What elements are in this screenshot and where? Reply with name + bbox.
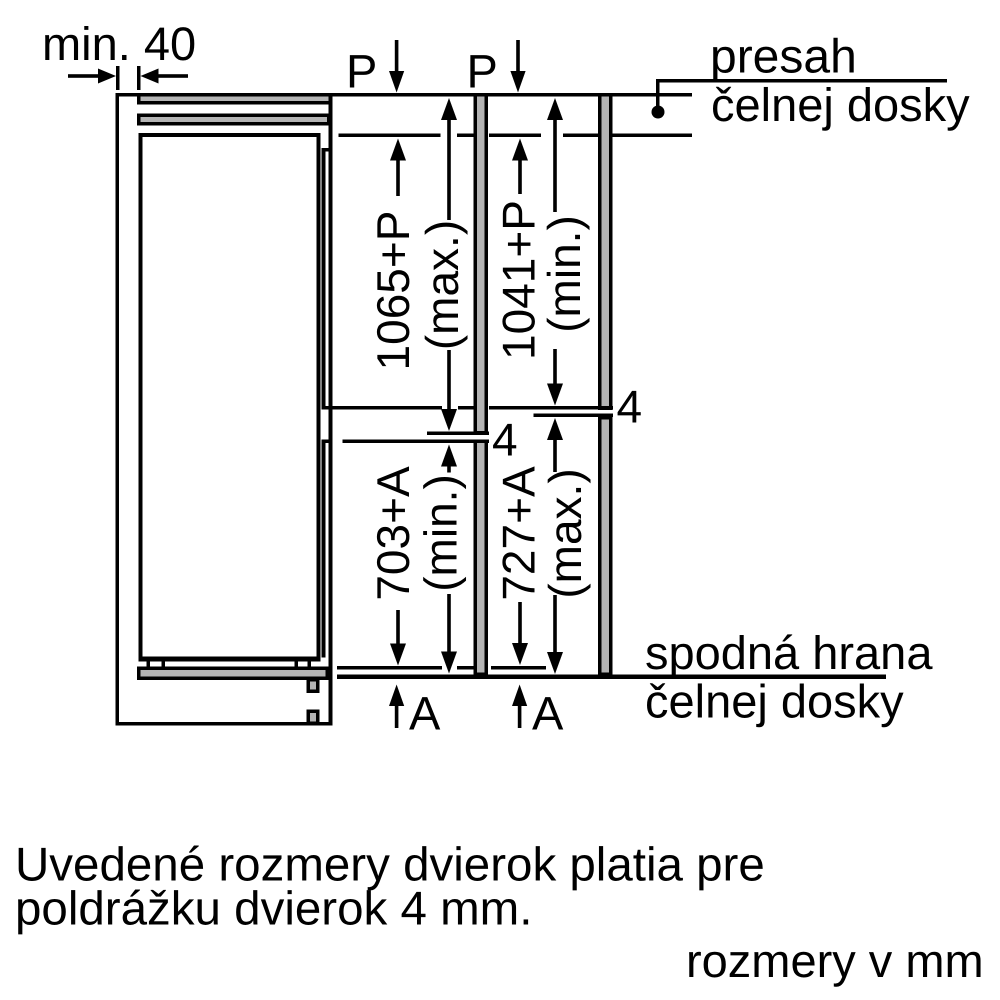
svg-text:1065+P: 1065+P [367,211,419,371]
svg-text:rozmery v mm: rozmery v mm [686,934,984,987]
svg-text:(max.): (max.) [539,468,591,598]
svg-text:P: P [467,45,498,98]
svg-text:(min.): (min.) [415,474,467,592]
svg-text:A: A [532,687,564,740]
svg-text:(max.): (max.) [416,220,468,350]
svg-text:min. 40: min. 40 [42,17,196,70]
svg-text:(min.): (min.) [538,215,590,333]
svg-text:1041+P: 1041+P [493,200,545,360]
svg-text:703+A: 703+A [367,466,419,601]
svg-text:P: P [346,45,377,98]
svg-text:4: 4 [617,381,643,433]
svg-text:spodná hrana: spodná hrana [645,626,933,679]
svg-text:poldrážku dvierok 4 mm.: poldrážku dvierok 4 mm. [15,883,532,936]
svg-text:A: A [409,687,441,740]
svg-text:727+A: 727+A [493,466,545,601]
svg-text:4: 4 [492,414,518,466]
svg-text:čelnej dosky: čelnej dosky [645,675,904,728]
svg-text:presah: presah [710,31,857,84]
svg-text:čelnej dosky: čelnej dosky [711,78,970,131]
